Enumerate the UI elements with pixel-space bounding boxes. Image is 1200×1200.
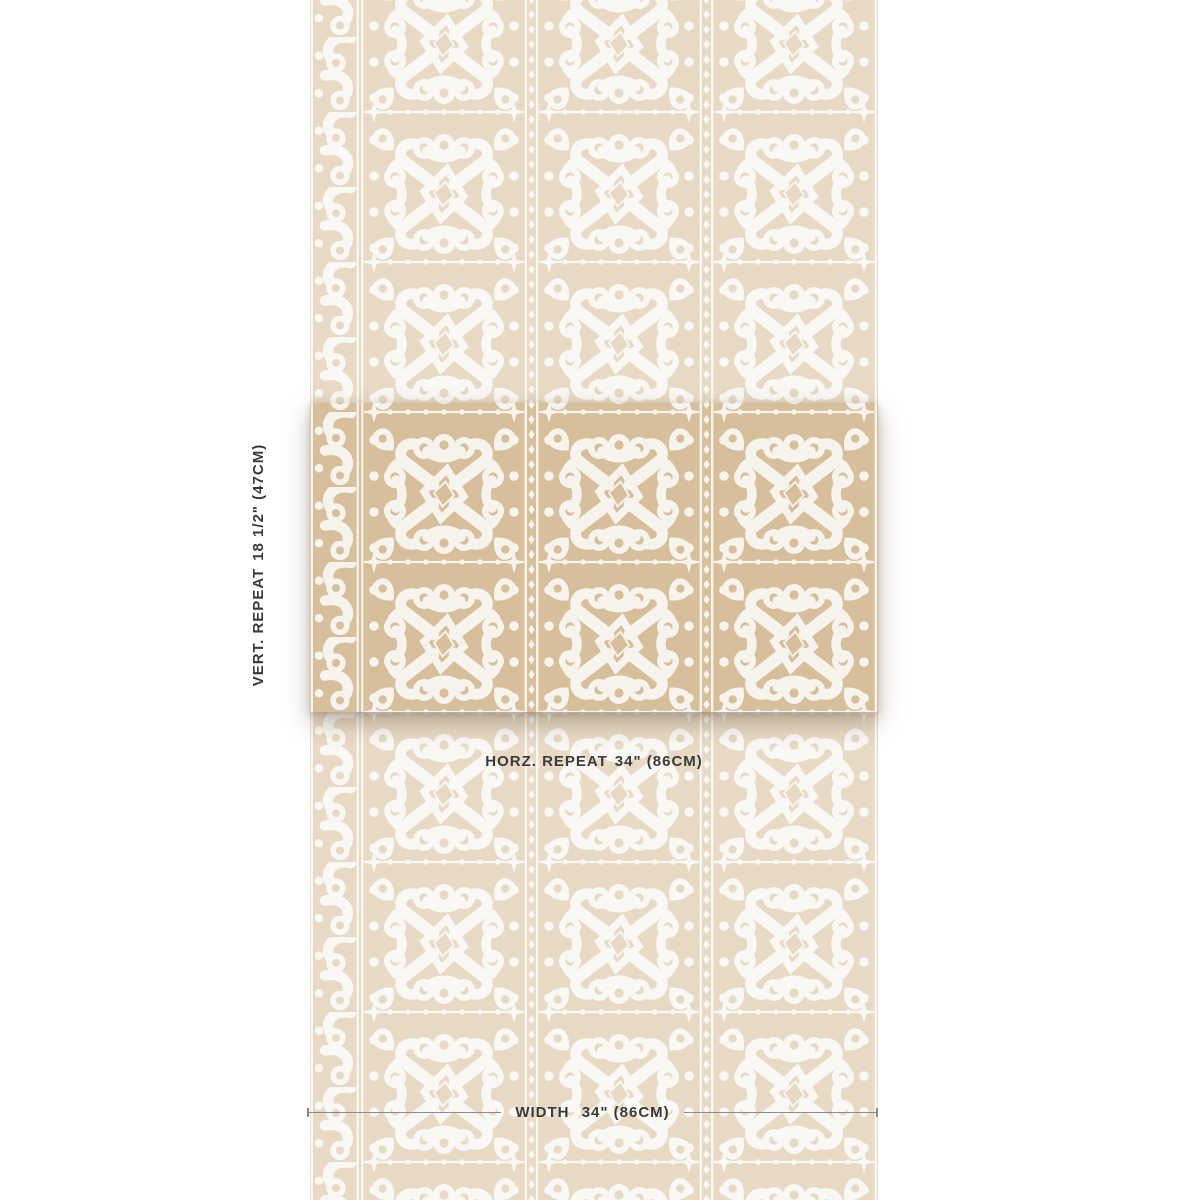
vertical-repeat-label-text: VERT. REPEAT bbox=[250, 568, 267, 686]
vertical-repeat-value: 18 1/2" (47CM) bbox=[250, 444, 267, 561]
horizontal-repeat-value: 34" (86CM) bbox=[615, 753, 703, 770]
wallpaper-measurement-diagram: VERT. REPEAT 18 1/2" (47CM) HORZ. REPEAT… bbox=[0, 0, 1200, 1200]
width-label: WIDTH 34" (86CM) bbox=[501, 1104, 683, 1121]
wallpaper-pattern-highlight bbox=[310, 403, 878, 712]
width-label-text: WIDTH bbox=[515, 1104, 569, 1121]
width-annotation: WIDTH 34" (86CM) bbox=[307, 1103, 878, 1121]
width-measure-tick-right bbox=[876, 1108, 878, 1117]
width-measure-line-left bbox=[309, 1112, 501, 1113]
vertical-repeat-label: VERT. REPEAT 18 1/2" (47CM) bbox=[247, 415, 269, 715]
width-value: 34" (86CM) bbox=[582, 1104, 670, 1121]
vertical-repeat-band bbox=[310, 403, 878, 712]
horizontal-repeat-label-text: HORZ. REPEAT bbox=[485, 753, 608, 770]
horizontal-repeat-label: HORZ. REPEAT 34" (86CM) bbox=[310, 751, 878, 771]
width-measure-line-right bbox=[684, 1112, 876, 1113]
